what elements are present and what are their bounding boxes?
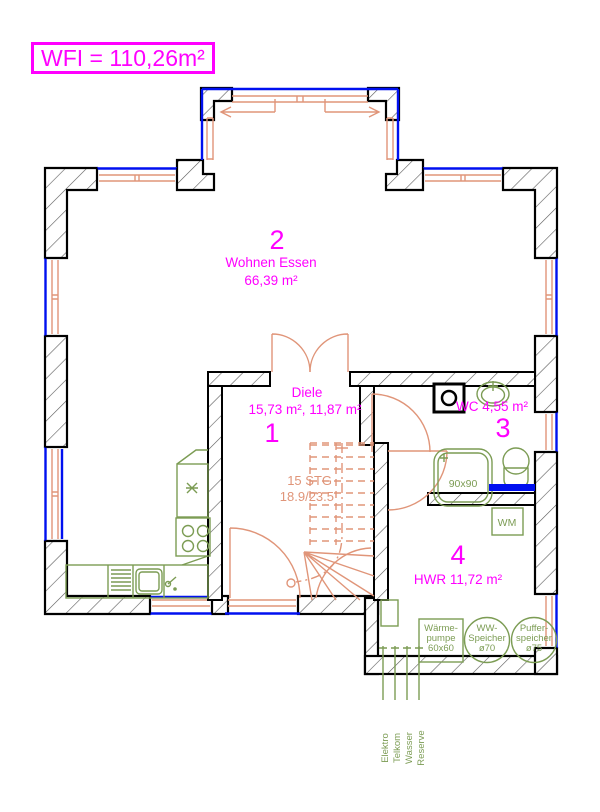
- stairs-dimension-label: 18.9/23.5: [280, 489, 334, 504]
- washing-machine-label: WM: [498, 517, 517, 529]
- stove-icon: [176, 518, 210, 556]
- kitchen-sink-icon: [136, 569, 177, 594]
- window-bottom-kitchen: [150, 596, 212, 614]
- window-right-living: [535, 258, 557, 336]
- utility-label-elektro: Elektro: [380, 733, 391, 763]
- room-label-wc: WC 4,55 m²: [456, 399, 529, 414]
- double-door-living: [272, 334, 348, 372]
- washing-machine-icon: WM: [492, 508, 523, 535]
- drainer-icon: [111, 570, 131, 590]
- window-left-upper: [45, 258, 67, 336]
- room-number-diele: 1: [264, 418, 279, 448]
- kitchen-counter: [66, 450, 210, 598]
- room-name-wohnen: Wohnen Essen: [225, 255, 316, 270]
- room-area-wohnen: 66,39 m²: [244, 273, 298, 288]
- room-name-diele: Diele: [292, 385, 323, 400]
- floor-plan-page: WFI = 110,26m²: [0, 0, 600, 812]
- hwr-cabinet-icon: [381, 600, 398, 626]
- window-top-left: [97, 168, 177, 190]
- utility-label-telkom: Telkom: [392, 733, 403, 763]
- svg-text:ø70: ø70: [479, 643, 495, 654]
- window-right-wc: [535, 412, 557, 452]
- room-area-diele: 15,73 m², 11,87 m²: [248, 402, 362, 417]
- window-sill-marker: [489, 484, 535, 491]
- room-number-hwr: 4: [450, 540, 465, 570]
- room-number-wohnen: 2: [269, 225, 284, 255]
- utility-label-wasser: Wasser: [404, 732, 415, 764]
- staircase: 15 STG 18.9/23.5: [280, 443, 374, 600]
- utility-label-reserve: Reserve: [416, 730, 427, 765]
- toilet-icon: [503, 448, 529, 489]
- bay-window: [177, 88, 423, 190]
- floor-plan-drawing: 15 STG 18.9/23.5: [0, 0, 600, 812]
- stairs-count-label: 15 STG: [287, 473, 332, 488]
- living-area-total-label: WFI = 110,26m²: [31, 42, 215, 74]
- svg-text:60x60: 60x60: [428, 643, 454, 654]
- room-number-wc: 3: [495, 413, 510, 443]
- window-left-kitchen: [45, 447, 67, 541]
- terrace-door: [225, 528, 300, 614]
- window-top-right: [423, 168, 503, 190]
- shower-size-label: 90x90: [449, 478, 478, 490]
- svg-text:ø75: ø75: [526, 643, 542, 654]
- room-label-hwr: HWR 11,72 m²: [414, 572, 503, 587]
- fridge-icon: [186, 483, 198, 493]
